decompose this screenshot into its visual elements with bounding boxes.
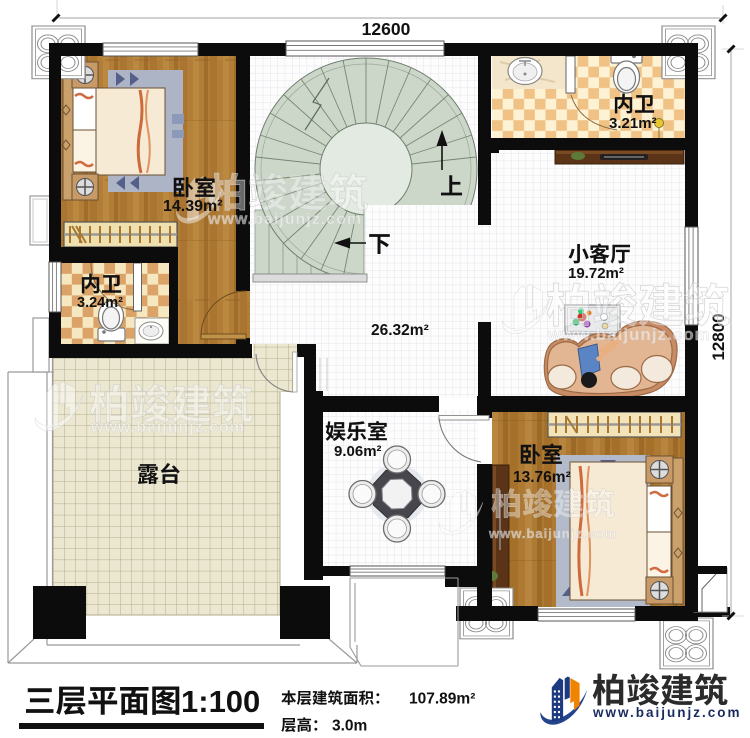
svg-text:26.32m²: 26.32m² (371, 322, 429, 339)
svg-text:www.baijunjz.com: www.baijunjz.com (90, 419, 245, 436)
svg-text:14.39m²: 14.39m² (163, 198, 223, 215)
svg-text:www.baijunjz.com: www.baijunjz.com (488, 526, 617, 541)
svg-text:1:100: 1:100 (181, 684, 260, 719)
svg-text:13.76m²: 13.76m² (513, 469, 571, 486)
svg-text:www.baijunjz.com: www.baijunjz.com (207, 211, 362, 228)
svg-text:19.72m²: 19.72m² (568, 265, 624, 282)
svg-text:3.21m²: 3.21m² (609, 115, 657, 132)
svg-text:www.baijunjz.com: www.baijunjz.com (547, 325, 711, 344)
svg-text:3.0m: 3.0m (332, 718, 367, 735)
svg-text:www.baijunjz.com: www.baijunjz.com (592, 705, 742, 720)
svg-text:107.89m²: 107.89m² (409, 691, 475, 708)
svg-text:3.24m²: 3.24m² (77, 295, 123, 311)
svg-text:12600: 12600 (362, 19, 411, 39)
svg-text:9.06m²: 9.06m² (334, 443, 382, 460)
